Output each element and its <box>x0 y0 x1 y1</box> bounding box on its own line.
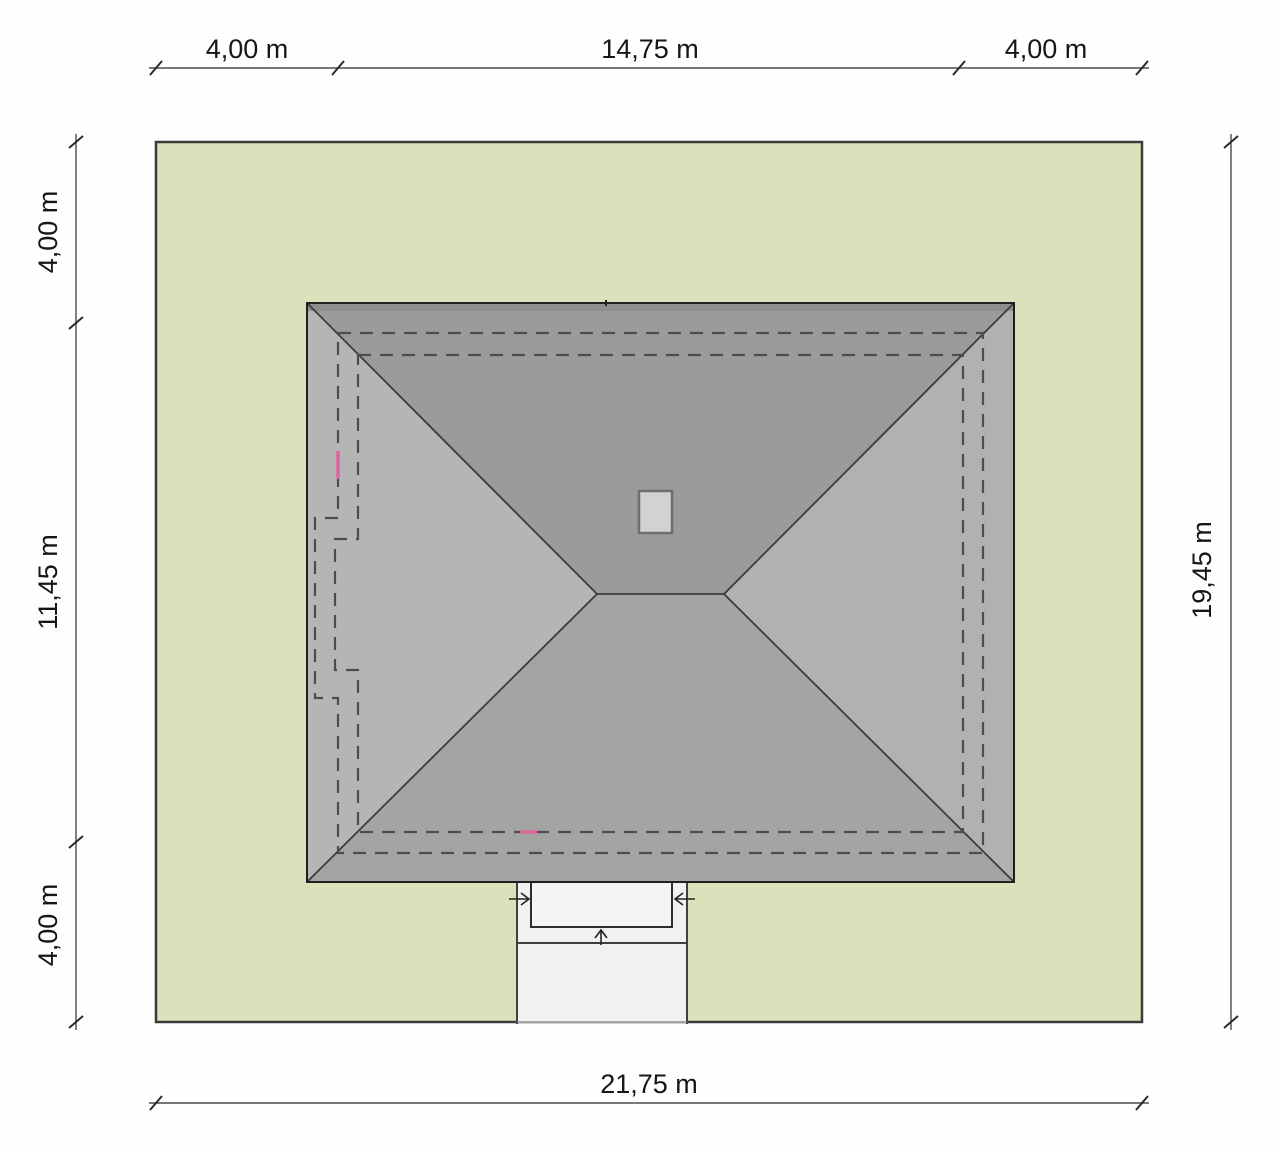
chimney <box>639 491 672 533</box>
dimension-left: 4,00 m 11,45 m 4,00 m <box>33 134 83 1030</box>
roof <box>307 300 1014 882</box>
dimension-right: 19,45 m <box>1187 134 1238 1030</box>
entrance-porch <box>531 883 672 927</box>
roof-eave-shadow-band <box>307 303 1014 311</box>
site-plan-drawing: 4,00 m 14,75 m 4,00 m 21,75 m 4,00 m 11,… <box>0 0 1280 1150</box>
dim-label-top-middle: 14,75 m <box>601 34 699 64</box>
dim-label-left-middle: 11,45 m <box>33 534 63 630</box>
dim-label-top-left: 4,00 m <box>206 34 289 64</box>
driveway <box>509 882 695 1024</box>
site-plan-svg: 4,00 m 14,75 m 4,00 m 21,75 m 4,00 m 11,… <box>0 0 1280 1150</box>
dim-label-right: 19,45 m <box>1187 521 1217 619</box>
dim-label-left-top: 4,00 m <box>33 191 63 274</box>
dim-label-top-right: 4,00 m <box>1005 34 1088 64</box>
dim-label-bottom: 21,75 m <box>600 1069 698 1099</box>
dimension-bottom: 21,75 m <box>149 1069 1149 1110</box>
dim-label-left-bottom: 4,00 m <box>33 884 63 967</box>
dimension-top: 4,00 m 14,75 m 4,00 m <box>149 34 1149 75</box>
